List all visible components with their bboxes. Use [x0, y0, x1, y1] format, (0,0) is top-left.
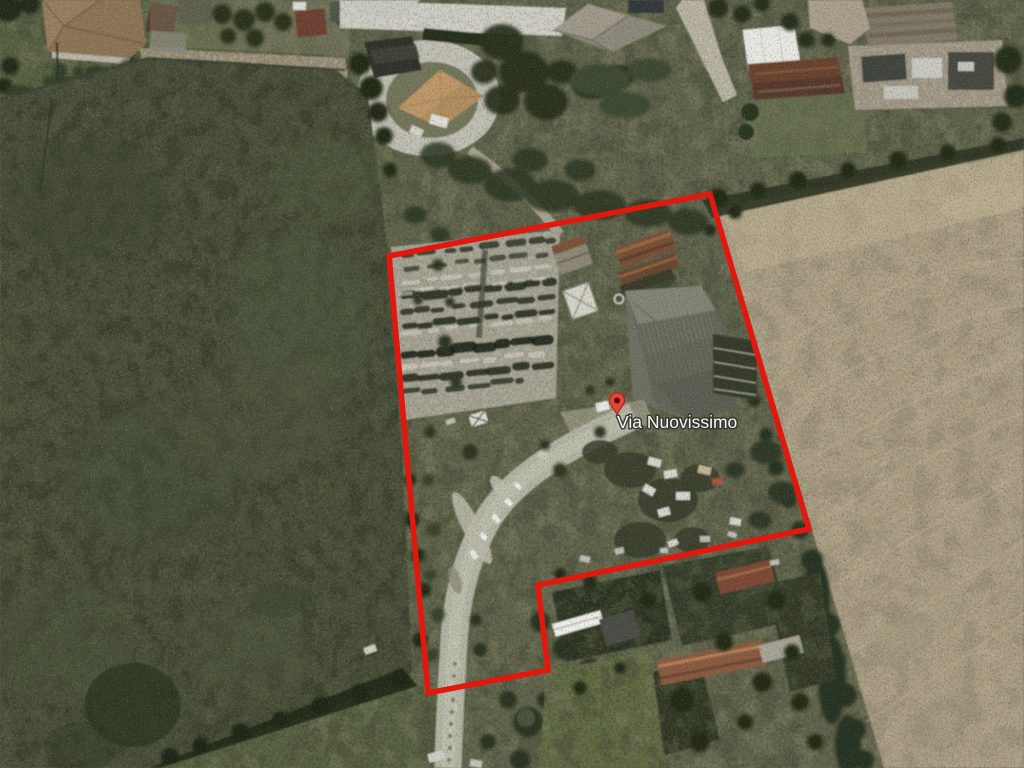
svg-text:Via Nuovissimo: Via Nuovissimo — [617, 412, 737, 432]
